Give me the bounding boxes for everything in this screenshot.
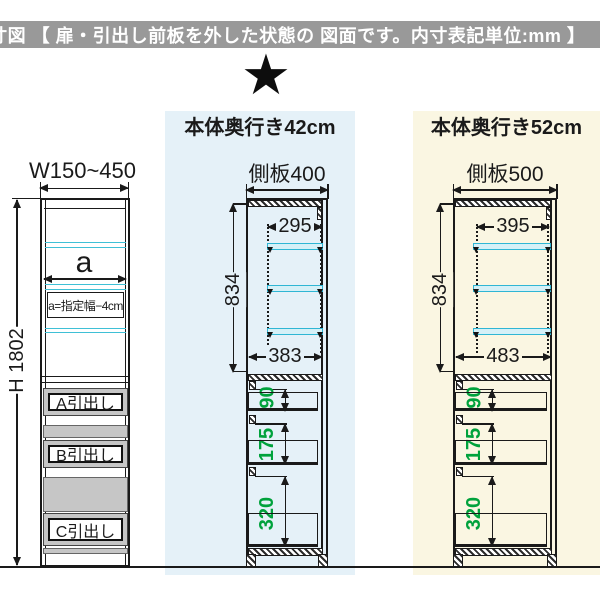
drawer-c-label: C引出し xyxy=(56,518,116,542)
extension-tick xyxy=(233,371,247,373)
drawer-divider-band xyxy=(43,477,128,512)
drawer-b-label: B引出し xyxy=(56,442,115,466)
shelf-width-dimension-arrow xyxy=(44,278,126,280)
extension-tick xyxy=(246,184,248,199)
title-bar: 内寸図 【 扉・引出し前板を外した状態の 図面です。内寸表記単位:mm 】 xyxy=(0,21,600,48)
depth-dimension-arrow xyxy=(453,189,557,191)
inner-dimension-diagram: 内寸図 【 扉・引出し前板を外した状態の 図面です。内寸表記単位:mm 】 ★ … xyxy=(0,0,600,600)
fixed-shelf-section xyxy=(455,374,552,381)
bottom-panel-section xyxy=(248,548,323,556)
side-view-52cm-cabinet: 側板500 834 395 483 90 xyxy=(427,105,587,575)
inner-height-label: 834 xyxy=(211,260,256,318)
adjustable-shelf xyxy=(267,328,323,335)
bottom-panel-section xyxy=(455,548,552,556)
side-view-42cm-cabinet: 側板400 834 295 383 90 xyxy=(220,105,380,575)
adjustable-shelf-line xyxy=(45,328,126,334)
inner-depth-label: 383 xyxy=(248,345,322,367)
drawer2-box xyxy=(248,440,318,465)
adjustable-shelf xyxy=(267,285,323,292)
floor-line xyxy=(0,566,600,568)
adjustable-shelf xyxy=(473,243,551,250)
shelf-depth-label: 395 xyxy=(477,215,549,237)
drawer-b: B引出し xyxy=(43,440,128,468)
fixed-shelf-section xyxy=(248,374,323,381)
extension-tick xyxy=(12,198,40,200)
extension-tick xyxy=(556,184,558,199)
side-panel-label: 側板500 xyxy=(443,162,567,187)
top-panel-section xyxy=(248,200,323,207)
shelf-depth-label: 295 xyxy=(262,215,328,237)
adjustable-shelf xyxy=(473,328,551,335)
extension-tick xyxy=(440,203,454,205)
width-range-label: W150~450 xyxy=(25,158,140,184)
width-dimension-arrow xyxy=(40,188,128,190)
adjustable-shelf xyxy=(267,243,323,250)
drawer-c-label-box: C引出し xyxy=(48,518,123,541)
extension-tick xyxy=(128,182,130,198)
drawer-divider-band xyxy=(43,425,128,438)
shelf-width-a-label: a xyxy=(50,247,118,279)
drawer-a-label-box: A引出し xyxy=(48,393,123,411)
adjustable-shelf xyxy=(473,285,551,292)
top-panel-inner-line xyxy=(44,208,126,209)
inner-height-label: 834 xyxy=(418,260,463,318)
extension-tick xyxy=(233,203,247,205)
drawer3-box xyxy=(248,513,318,547)
drawer-c: C引出し xyxy=(43,513,128,546)
inner-depth-label: 483 xyxy=(455,345,551,367)
extension-tick xyxy=(327,184,329,199)
fixed-shelf-line xyxy=(42,376,128,383)
drawer3-box xyxy=(455,513,547,547)
extension-tick xyxy=(453,184,455,199)
shelf-width-note: a=指定幅−4cm xyxy=(48,297,123,314)
shelf-width-note-box: a=指定幅−4cm xyxy=(47,292,124,318)
side-panel-label: 側板400 xyxy=(236,162,338,187)
drawer-b-label-box: B引出し xyxy=(48,445,123,463)
title-text: 内寸図 【 扉・引出し前板を外した状態の 図面です。内寸表記単位:mm 】 xyxy=(0,22,585,48)
drawer1-box xyxy=(455,392,547,411)
base-band xyxy=(43,548,128,554)
star-icon: ★ xyxy=(233,45,299,105)
depth-dimension-arrow xyxy=(246,189,328,191)
extension-tick xyxy=(40,182,42,198)
drawer-a-label: A引出し xyxy=(56,390,115,414)
front-view-cabinet: W150~450 a a=指定幅−4cm A引出し B引出し xyxy=(0,155,165,580)
drawer-a: A引出し xyxy=(43,388,128,416)
adjustable-shelf-line xyxy=(45,284,126,290)
extension-tick xyxy=(440,371,454,373)
top-panel-section xyxy=(455,200,552,207)
height-label: H 1802 xyxy=(0,320,40,400)
drawer2-box xyxy=(455,440,547,465)
drawer1-box xyxy=(248,392,318,411)
